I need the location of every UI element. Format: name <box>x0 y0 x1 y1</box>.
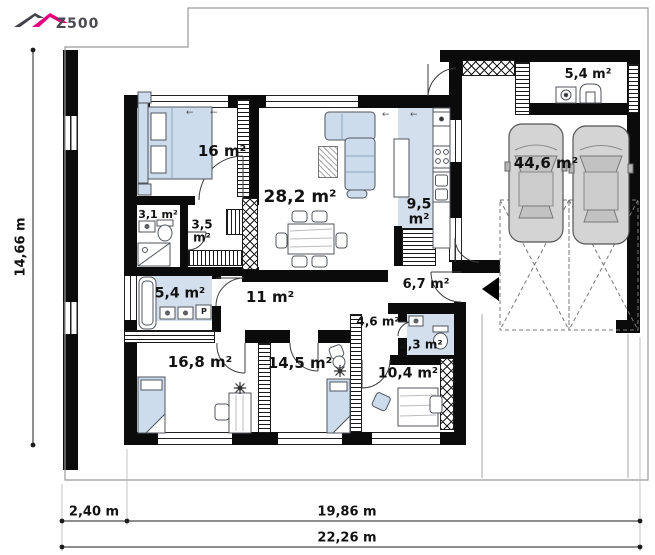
room-label-bedroom-4: 10,4 m² <box>378 367 438 382</box>
bathtub-icon <box>139 277 156 329</box>
room-label-hall: 11 m² <box>246 290 294 306</box>
window-arrow-icon: ← <box>410 110 418 120</box>
logo-text: Z500 <box>56 16 99 32</box>
room-label-utility: 5,4 m² <box>565 68 612 82</box>
window-arrow-icon: ← <box>186 108 194 118</box>
vector-layer <box>0 0 655 555</box>
dimension-bottom-main: 19,86 m <box>317 505 376 520</box>
room-label-kitchen: 9,5 m² <box>402 197 436 226</box>
room-label-bedroom-2: 16,8 m² <box>168 355 232 371</box>
room-label-living-room: 28,2 m² <box>263 189 336 207</box>
dimension-bottom-total: 22,26 m <box>317 531 376 546</box>
entrance-arrow-icon <box>482 277 499 301</box>
dining-table-icon <box>276 211 347 267</box>
washing-machine-label: P <box>201 307 207 316</box>
room-label-wardrobe: 3,5 m² <box>185 218 219 243</box>
room-label-corridor: 4,6 m² <box>356 316 399 329</box>
driveway-lines <box>482 314 628 478</box>
logo: Z500 <box>12 6 112 34</box>
room-label-wc: 3,1 m² <box>138 209 178 221</box>
room-label-bedroom-1: 16 m² <box>198 144 246 160</box>
sofa-icon <box>325 112 375 198</box>
room-label-entry: 6,7 m² <box>403 278 450 292</box>
dimension-bottom-left: 2,40 m <box>69 505 119 520</box>
shower-icon <box>138 243 170 266</box>
dimension-left: 14,66 m <box>14 217 29 276</box>
room-label-wc2: 2,3 m² <box>399 339 442 352</box>
room-label-bedroom-3: 14,5 m² <box>268 356 332 372</box>
floor-plan: Z500 5,4 m² 16 m² 28,2 m² 9,5 m² 44,6 m²… <box>0 0 655 555</box>
window-arrow-icon: ← <box>210 108 218 118</box>
furnace-icon <box>556 84 601 103</box>
kitchen-counter-icon <box>394 108 450 248</box>
room-label-garage: 44,6 m² <box>514 156 578 172</box>
room-label-bathroom: 5,4 m² <box>155 287 205 302</box>
window-arrow-icon: ← <box>382 110 390 120</box>
